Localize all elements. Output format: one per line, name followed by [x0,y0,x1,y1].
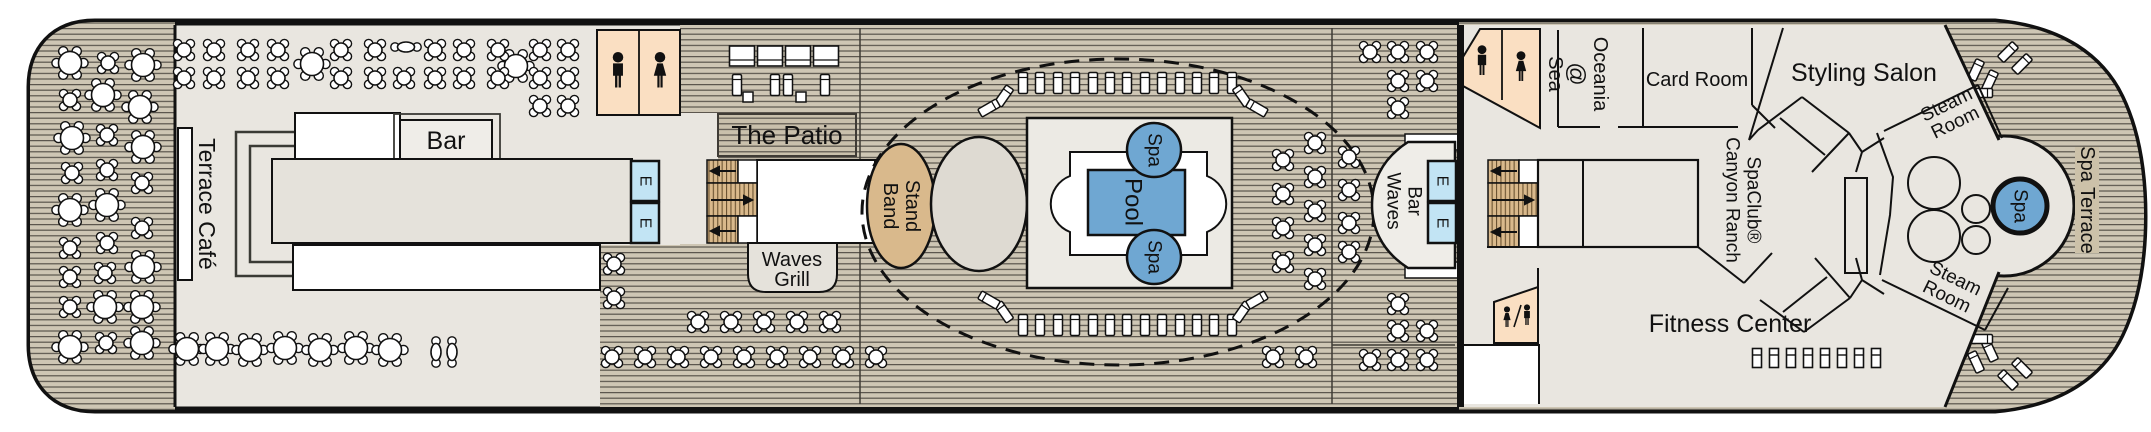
lounger-icon [1089,315,1098,336]
oceania-at-sea-label: Sea [1544,56,1566,92]
lounger-icon [1176,315,1185,336]
table-icon [131,217,152,238]
table-icon [203,39,224,60]
table-icon [237,39,258,60]
bar-label: Bar [427,127,466,155]
table-icon [819,311,840,332]
table-icon [1416,349,1437,370]
spa-label: Spa [1144,240,1165,274]
lounger-icon [1054,315,1063,336]
table-icon [720,311,741,332]
lounger-icon [1054,73,1063,94]
gym-equipment-icon [1753,349,1762,368]
table-icon [865,346,886,367]
lounger-icon [1210,73,1219,94]
table-icon [173,67,194,88]
table-icon [1387,320,1408,341]
table-icon [431,337,441,367]
terrace-cafe-label: Terrace Café [194,138,220,270]
waves-grill-label: Grill [774,269,810,291]
table-icon [786,311,807,332]
styling-salon-label: Styling Salon [1791,59,1937,87]
table-icon [424,67,445,88]
table-icon [59,266,80,287]
galley-block-bottom [293,245,600,290]
table-icon [832,346,853,367]
table-icon [96,232,117,253]
table-icon [267,67,288,88]
table-icon [733,346,754,367]
table-icon [487,67,508,88]
lounger-icon [1106,73,1115,94]
the-patio-label: The Patio [731,120,842,150]
waves-grill-label: Waves [762,249,822,271]
lounger-icon [733,75,742,96]
table-icon [1387,349,1408,370]
deck-plan: The Patio Terrace Café Bar E E Waves G [0,0,2151,432]
table-icon [237,67,258,88]
table-icon [96,159,117,180]
lounger-icon [771,75,780,96]
oceania-at-sea-label: @ [1564,62,1590,85]
spa-terrace-label: Spa Terrace [2076,146,2098,253]
canyon-ranch-label: SpaClub® [1743,157,1764,244]
lounger-icon [1019,315,1028,336]
table-icon [1387,97,1408,118]
svg-text:E: E [1434,218,1451,229]
table-icon [61,162,82,183]
table-icon [557,39,578,60]
table-icon [799,346,820,367]
spa-label: Spa [1144,133,1165,167]
table-icon [529,67,550,88]
table-icon [1338,179,1359,200]
table-icon [1304,132,1325,153]
table-icon [753,311,774,332]
lounger-icon [1210,315,1219,336]
table-icon [1304,268,1325,289]
lounger-icon [1176,73,1185,94]
table-icon [1272,149,1293,170]
table-icon [424,39,445,60]
card-room-label: Card Room [1646,69,1748,91]
table-icon [700,346,721,367]
cabana-icon [814,46,839,66]
fitness-center-label: Fitness Center [1649,310,1812,338]
table-icon [1304,200,1325,221]
deck-plan-page: The Patio Terrace Café Bar E E Waves G [0,0,2151,432]
table-icon [1387,41,1408,62]
lounger-icon [1071,73,1080,94]
gym-equipment-icon [1770,349,1779,368]
table-icon [203,67,224,88]
lounger-icon [1193,315,1202,336]
waves-bar-label: Bar [1404,186,1425,216]
band-stand-label: Band [879,183,901,230]
lounger-icon [1036,315,1045,336]
table-icon [634,346,655,367]
table-icon [667,346,688,367]
canyon-ranch-label: Canyon Ranch [1722,137,1743,263]
lounger-icon [1123,315,1132,336]
cabana-icon [786,46,811,66]
table-icon [557,67,578,88]
table-icon [1359,41,1380,62]
gym-equipment-icon [1804,349,1813,368]
spa-room-label: Spa [2010,189,2031,223]
table-icon [95,332,116,353]
gym-equipment-icon [1872,349,1881,368]
svg-text:E: E [1434,176,1451,187]
lounger-icon [1141,73,1150,94]
table-icon [766,346,787,367]
table-icon [1387,70,1408,91]
table-icon [447,337,457,367]
lounger-icon [1158,73,1167,94]
gym-equipment-icon [1787,349,1796,368]
oceania-at-sea-label: Oceania [1589,37,1611,112]
table-icon [59,89,80,110]
table-icon [1416,41,1437,62]
table-icon [97,52,118,73]
table-icon [364,67,385,88]
elevator-lobby [659,159,708,244]
galley-block-main [272,159,632,243]
table-icon [529,39,550,60]
buffet-counter [178,128,192,280]
side-table-icon [743,92,753,102]
gym-equipment-icon [1855,349,1864,368]
table-icon [687,311,708,332]
table-icon [1359,349,1380,370]
stairway-forward [1488,160,1538,247]
lounger-icon [1019,73,1028,94]
galley-block-top [295,113,400,160]
table-icon [557,95,578,116]
dance-floor [931,137,1027,271]
cabana-icon [758,46,783,66]
fitness-corridor [1464,345,1539,404]
table-icon [1272,251,1293,272]
pool-label: Pool [1120,178,1147,226]
table-icon [1338,146,1359,167]
lounger-icon [1071,315,1080,336]
table-icon [1387,293,1408,314]
table-icon [393,67,414,88]
table-icon [364,39,385,60]
cabana-icon [730,46,755,66]
svg-text:E: E [637,218,654,229]
table-icon [1338,241,1359,262]
lounger-icon [1036,73,1045,94]
table-icon [131,172,152,193]
table-icon [1416,70,1437,91]
waves-bar-label: Waves [1383,172,1404,229]
stairway-midship [707,160,757,243]
table-icon [453,67,474,88]
table-icon [1295,346,1316,367]
table-icon [96,124,117,145]
gym-equipment-icon [1821,349,1830,368]
lounger-icon [1106,315,1115,336]
table-icon [1338,212,1359,233]
lounger-icon [1089,73,1098,94]
table-icon [453,39,474,60]
elevators-forward: E E [1428,161,1456,243]
lounger-icon [1141,315,1150,336]
table-icon [603,287,624,308]
lounger-icon [821,75,830,96]
table-icon [267,39,288,60]
table-icon [59,237,80,258]
table-icon [94,262,115,283]
table-icon [391,42,421,52]
svg-text:E: E [637,176,654,187]
stage-area [757,160,875,243]
lounger-icon [1123,73,1132,94]
table-icon [1262,346,1283,367]
band-stand-label: Stand [901,180,923,232]
side-table-icon [796,92,806,102]
table-icon [330,67,351,88]
table-icon [487,39,508,60]
patio-corridor [676,113,718,160]
table-icon [1416,320,1437,341]
restrooms-cafe [597,30,680,115]
table-icon [1272,217,1293,238]
table-icon [1304,166,1325,187]
table-icon [1272,183,1293,204]
lounger-icon [784,75,793,96]
elevators-midship: E E [631,161,659,243]
lounger-icon [1158,315,1167,336]
table-icon [59,296,80,317]
gym-equipment-icon [1838,349,1847,368]
table-icon [330,39,351,60]
lounger-icon [1193,73,1202,94]
table-icon [529,95,550,116]
table-icon [603,253,624,274]
table-icon [173,39,194,60]
table-icon [1304,234,1325,255]
table-icon [601,346,622,367]
